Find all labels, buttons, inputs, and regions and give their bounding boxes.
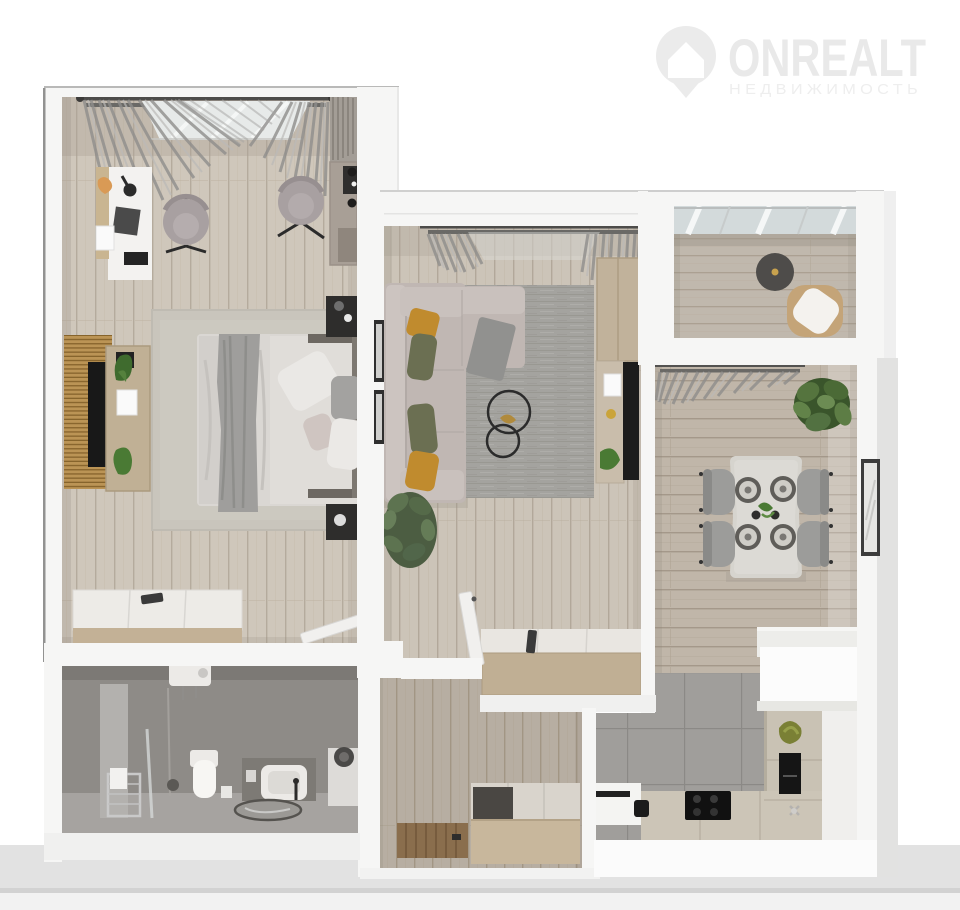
- svg-text:ONREALT: ONREALT: [728, 29, 926, 88]
- svg-text:НЕДВИЖИМОСТЬ: НЕДВИЖИМОСТЬ: [729, 81, 922, 98]
